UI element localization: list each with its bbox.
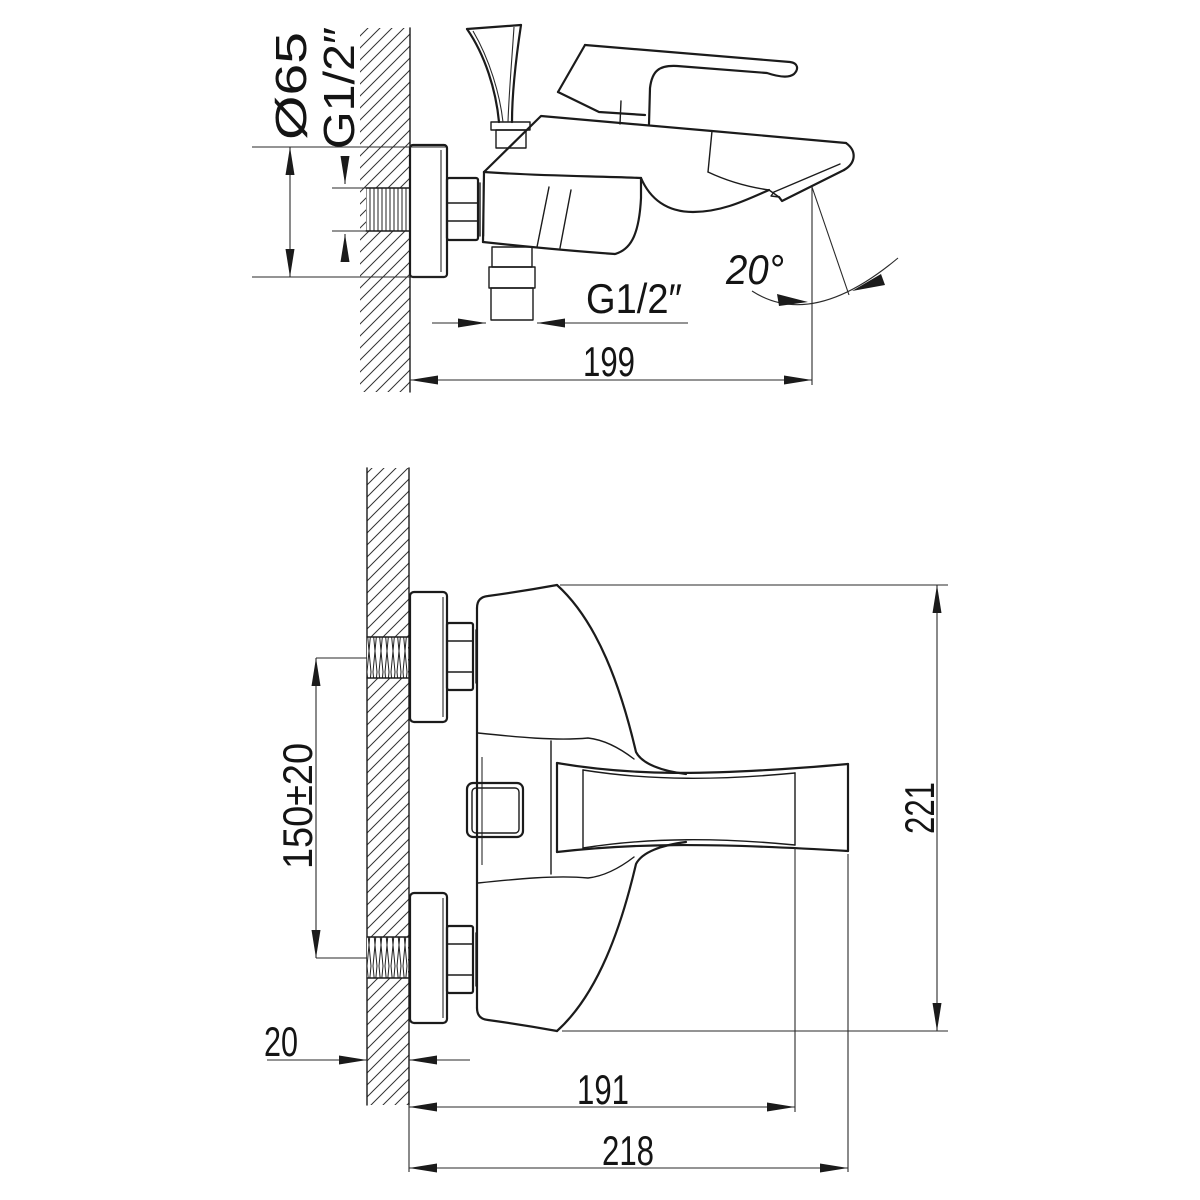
shower-outlet-pipe xyxy=(489,247,535,320)
dim-inlet-spacing: 150±20 xyxy=(274,658,367,958)
dim-spout-projection-front: 191 xyxy=(409,848,795,1172)
dim-label-spout-projection-front: 191 xyxy=(577,1066,629,1113)
dim-label-overall-height: 221 xyxy=(896,782,943,834)
lever-handle-side xyxy=(558,45,797,124)
dim-overall-projection: 218 xyxy=(409,854,848,1174)
dim-label-spout-angle: 20° xyxy=(725,246,784,293)
dim-projection-side: 199 xyxy=(410,338,812,385)
dim-label-overall-projection: 218 xyxy=(602,1127,654,1174)
front-view: 150±20 20 191 218 221 xyxy=(264,468,948,1174)
dim-label-inlet-spacing: 150±20 xyxy=(274,743,321,869)
diverter-knob-front xyxy=(467,783,523,837)
dim-label-flange-diameter: Ø65 xyxy=(267,32,316,140)
wall-section-front xyxy=(367,468,409,1105)
hex-nut-lower xyxy=(447,926,476,993)
escutcheon-lower xyxy=(410,893,447,1023)
dim-outlet-thread: G1/2″ xyxy=(432,275,688,323)
side-view: Ø65 G1/2″ G1/2″ 20° 199 xyxy=(252,25,898,392)
wall-thread-lower xyxy=(367,937,408,978)
dim-overall-height: 221 xyxy=(560,585,948,1031)
faucet-body-front xyxy=(477,585,686,1031)
diverter-knob-side xyxy=(467,25,530,148)
faucet-body-side xyxy=(483,116,854,254)
dim-label-wall-thickness: 20 xyxy=(264,1018,298,1065)
faucet-technical-drawing: Ø65 G1/2″ G1/2″ 20° 199 xyxy=(0,0,1200,1200)
hex-nut-upper xyxy=(447,623,476,690)
escutcheon-upper xyxy=(410,592,447,722)
technical-drawing-page: Ø65 G1/2″ G1/2″ 20° 199 xyxy=(0,0,1200,1200)
hex-nut-side xyxy=(447,178,484,240)
wall-thread-upper xyxy=(367,637,408,678)
dim-label-outlet-thread: G1/2″ xyxy=(586,275,682,322)
escutcheon-side xyxy=(410,145,447,277)
dim-label-inlet-thread: G1/2″ xyxy=(315,27,364,149)
dim-inlet-thread: G1/2″ xyxy=(315,27,366,262)
dim-label-projection-side: 199 xyxy=(583,338,635,385)
wall-thread-side xyxy=(366,188,410,231)
dim-spout-angle: 20° xyxy=(725,187,898,385)
lever-handle-front xyxy=(557,763,848,852)
